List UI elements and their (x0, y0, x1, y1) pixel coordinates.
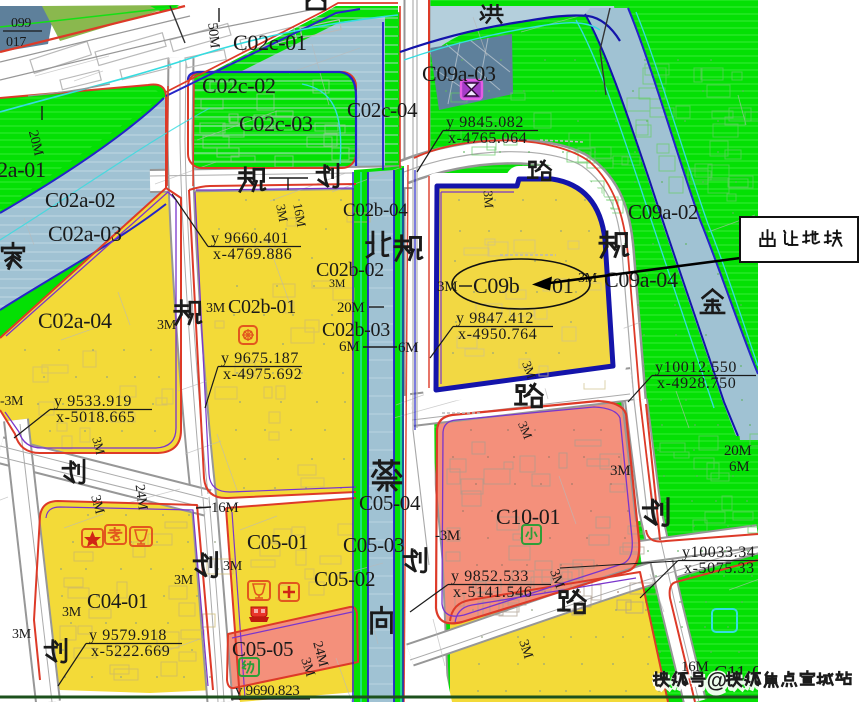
svg-text:3M: 3M (437, 279, 457, 295)
svg-text:x-5141.546: x-5141.546 (453, 584, 532, 601)
svg-text:3M: 3M (12, 627, 32, 642)
svg-text:C02c-02: C02c-02 (202, 73, 276, 98)
svg-text:y 9845.082: y 9845.082 (446, 114, 524, 131)
svg-text:3M: 3M (206, 301, 226, 316)
svg-text:C02a-02: C02a-02 (45, 188, 115, 212)
svg-text:x-5018.665: x-5018.665 (56, 409, 135, 426)
svg-text:-3M: -3M (435, 528, 460, 544)
svg-text:3M: 3M (329, 276, 346, 290)
svg-text:y 9852.533: y 9852.533 (451, 568, 529, 585)
svg-text:y 9660.401: y 9660.401 (211, 230, 289, 247)
svg-text:x-4928.750: x-4928.750 (657, 375, 736, 392)
svg-text:y 9675.187: y 9675.187 (221, 350, 299, 367)
svg-text:C05-02: C05-02 (314, 567, 375, 591)
svg-text:3M: 3M (174, 573, 194, 588)
svg-text:x-4765.064: x-4765.064 (448, 130, 527, 147)
svg-text:y10033.34: y10033.34 (682, 544, 755, 561)
svg-text:017: 017 (6, 35, 26, 50)
svg-text:C02a-01: C02a-01 (0, 157, 46, 182)
svg-text:3M: 3M (610, 463, 630, 479)
svg-text:C02c-04: C02c-04 (347, 98, 418, 122)
svg-text:C09a-02: C09a-02 (628, 200, 698, 224)
svg-text:C05-05: C05-05 (232, 637, 293, 661)
svg-text:3M: 3M (481, 190, 497, 209)
svg-text:6M: 6M (729, 459, 749, 475)
svg-text:y 9847.412: y 9847.412 (456, 310, 534, 327)
svg-text:3M: 3M (157, 318, 177, 333)
svg-text:6M: 6M (398, 340, 418, 356)
svg-text:x-4769.886: x-4769.886 (213, 246, 292, 263)
svg-text:C10-01: C10-01 (496, 504, 560, 529)
svg-text:C02a-04: C02a-04 (38, 308, 112, 333)
svg-text:x-5222.669: x-5222.669 (91, 643, 170, 660)
svg-text:C05-03: C05-03 (343, 533, 404, 557)
svg-text:01: 01 (552, 273, 573, 298)
svg-text:20M: 20M (337, 300, 364, 316)
svg-text:3M: 3M (223, 559, 243, 574)
svg-text:C02b-01: C02b-01 (228, 296, 296, 318)
svg-text:C04-01: C04-01 (87, 589, 148, 613)
svg-text:50M: 50M (204, 22, 222, 50)
svg-text:C05-04: C05-04 (359, 491, 421, 515)
svg-text:-3M: -3M (0, 394, 24, 409)
svg-text:C09b: C09b (473, 273, 520, 298)
svg-text:C02a-03: C02a-03 (48, 221, 122, 246)
svg-text:16M: 16M (211, 500, 238, 516)
svg-text:C02b-03: C02b-03 (322, 319, 390, 341)
svg-text:x-4950.764: x-4950.764 (458, 326, 537, 343)
svg-text:C09a-03: C09a-03 (422, 61, 496, 86)
svg-text:C02c-03: C02c-03 (239, 111, 313, 136)
svg-text:y 9533.919: y 9533.919 (54, 393, 132, 410)
svg-text:y10012.550: y10012.550 (655, 359, 737, 376)
svg-text:C02b-04: C02b-04 (343, 200, 408, 221)
svg-text:099: 099 (11, 16, 31, 31)
svg-text:3M: 3M (273, 203, 291, 224)
svg-text:x-4975.692: x-4975.692 (223, 366, 302, 383)
svg-text:20M: 20M (724, 443, 751, 459)
svg-text:y 9579.918: y 9579.918 (89, 627, 167, 644)
svg-text:3M: 3M (62, 605, 82, 620)
svg-text:C02c-01: C02c-01 (233, 30, 307, 55)
svg-text:C05-01: C05-01 (247, 530, 308, 554)
svg-text:C02b-02: C02b-02 (316, 259, 384, 281)
svg-text:@: @ (707, 670, 727, 693)
svg-text:6M: 6M (339, 339, 359, 355)
svg-text:x-5075.33: x-5075.33 (684, 560, 755, 577)
